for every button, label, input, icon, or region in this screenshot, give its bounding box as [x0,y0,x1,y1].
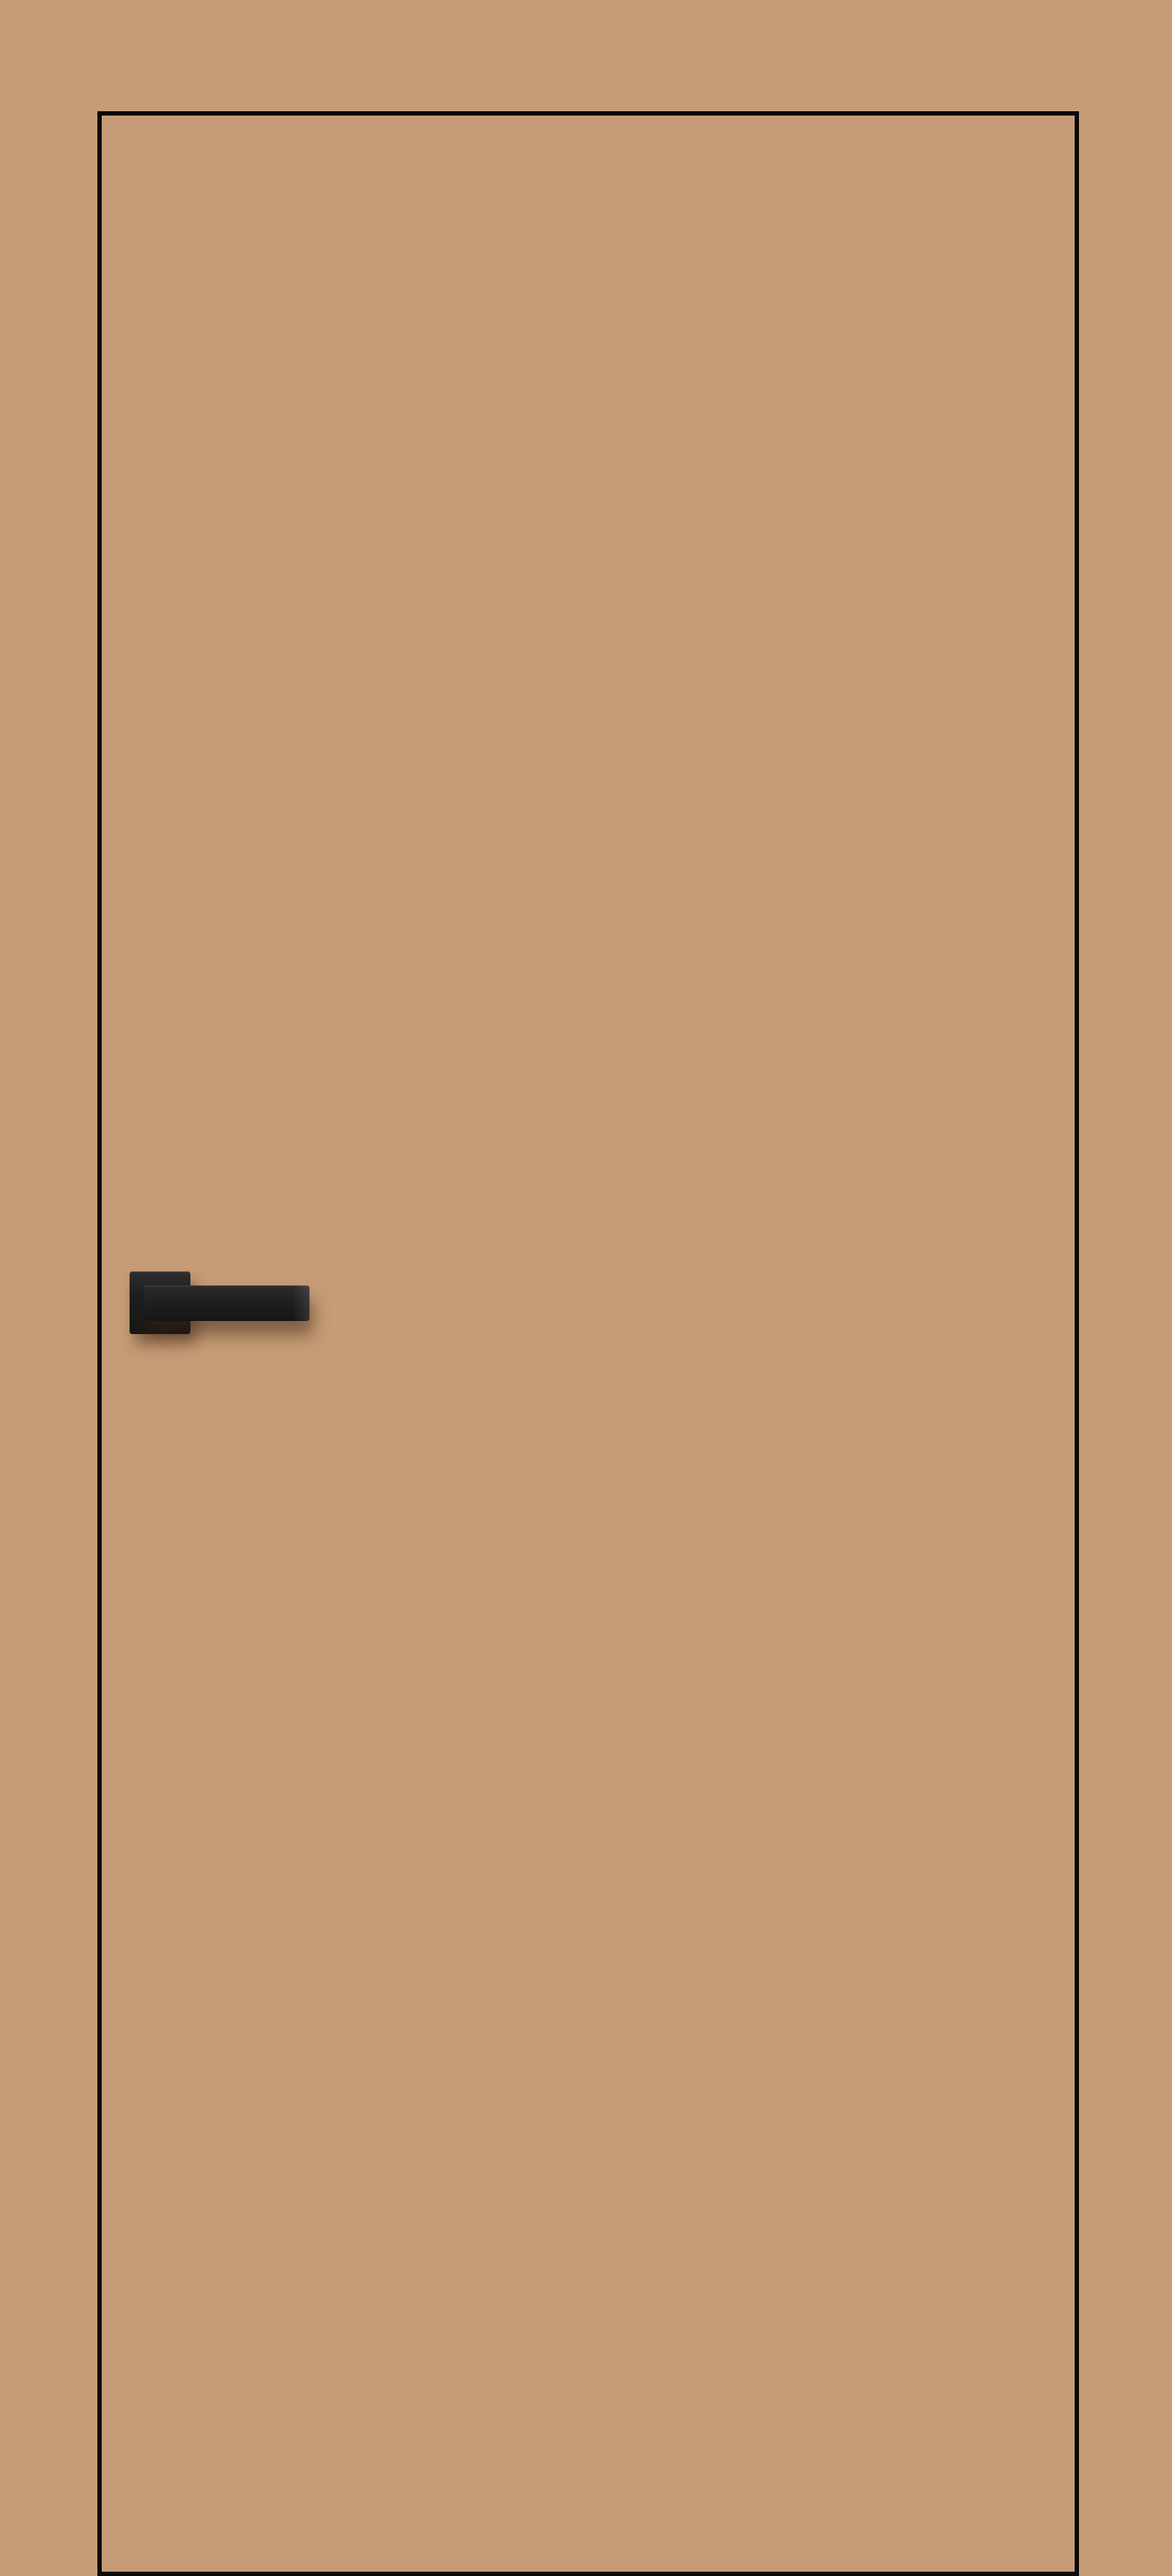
wall-background [0,0,1172,2576]
door-handle-lever [144,1285,310,1321]
door-handle [130,1271,343,1334]
door-leaf [97,111,1079,2576]
